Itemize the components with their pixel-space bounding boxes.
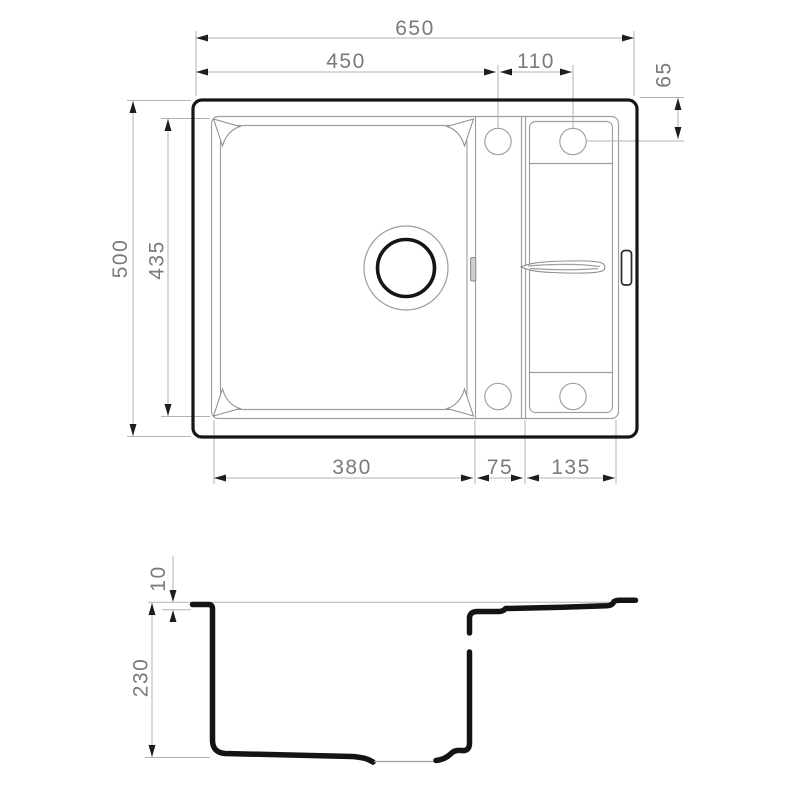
section-dimensions: 10 230 (130, 556, 177, 757)
arrowhead (675, 127, 682, 139)
arrowhead (622, 35, 634, 42)
drawing-canvas: 650 450 110 65 500 435 380 75 135 (0, 0, 800, 800)
arrowhead (130, 101, 137, 113)
arrowhead (500, 69, 512, 76)
arrowhead (165, 119, 172, 131)
arrowhead (130, 424, 137, 436)
arrowhead (196, 69, 208, 76)
dim-650-label: 650 (395, 17, 435, 40)
top-view: 650 450 110 65 500 435 380 75 135 (109, 17, 684, 484)
section-view: 10 230 (130, 556, 636, 762)
arrowhead (170, 610, 177, 622)
sink-drawing-svg: 650 450 110 65 500 435 380 75 135 (0, 0, 800, 800)
dim-135-label: 135 (551, 456, 591, 479)
section-left-wall (193, 605, 374, 763)
overflow-tab (471, 258, 476, 282)
dim-230-label: 230 (130, 658, 153, 698)
arrowhead (484, 69, 496, 76)
arrowhead (527, 475, 539, 482)
section-drainer-surface (470, 600, 636, 633)
arrowhead (149, 603, 156, 615)
dim-450-label: 450 (326, 50, 366, 73)
section-right-wall-lower (436, 652, 470, 761)
arrowhead (560, 69, 572, 76)
dim-65-label: 65 (653, 61, 676, 87)
section-profile (193, 600, 636, 762)
arrowhead (461, 475, 473, 482)
dim-10-label: 10 (147, 565, 170, 591)
arrowhead (170, 590, 177, 602)
dim-110-label: 110 (517, 50, 555, 73)
dim-500-label: 500 (109, 239, 132, 279)
arrowhead (603, 475, 615, 482)
dim-75-label: 75 (487, 456, 513, 479)
arrowhead (149, 745, 156, 757)
dim-435-label: 435 (146, 240, 169, 280)
arrowhead (214, 475, 226, 482)
dim-380-label: 380 (332, 456, 372, 479)
arrowhead (196, 35, 208, 42)
arrowhead (165, 404, 172, 416)
arrowhead (675, 98, 682, 110)
rim-slot (622, 251, 632, 286)
